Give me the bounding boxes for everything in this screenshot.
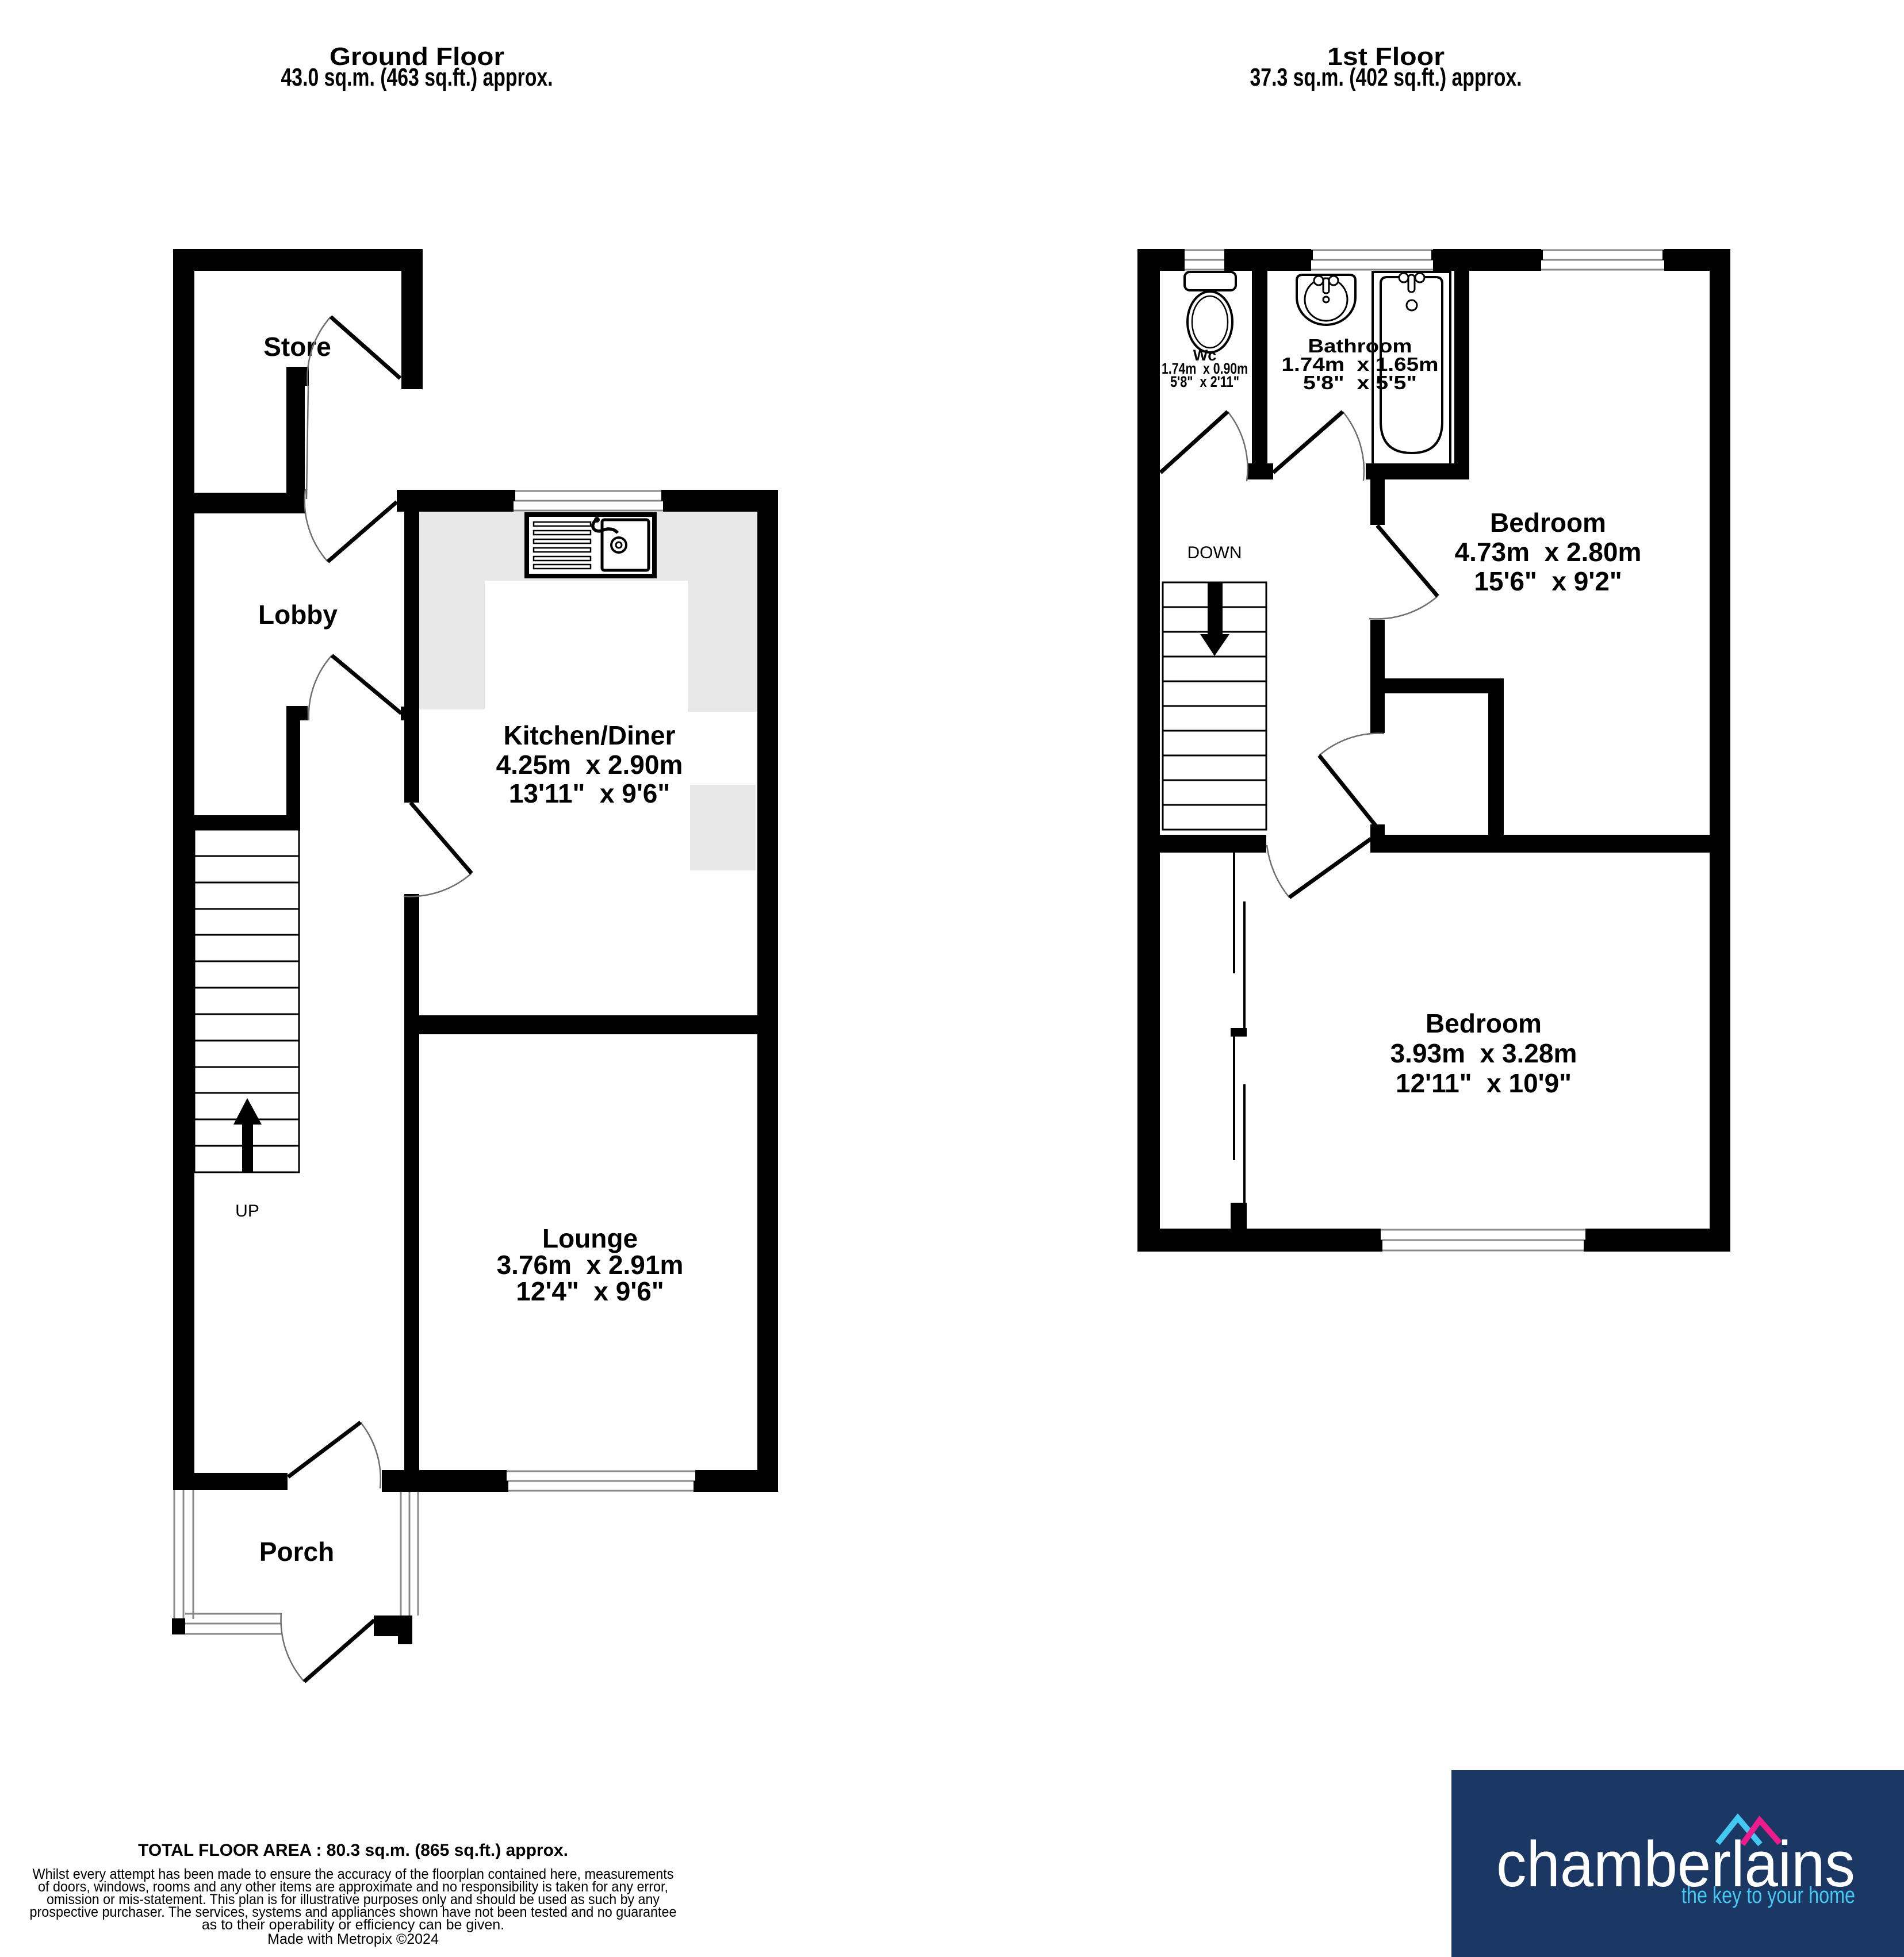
svg-text:Porch: Porch [259, 1537, 334, 1567]
svg-text:UP: UP [235, 1202, 259, 1221]
svg-text:13'11" x 9'6": 13'11" x 9'6" [509, 778, 670, 808]
svg-text:4.25m x 2.90m: 4.25m x 2.90m [496, 750, 683, 780]
svg-text:Lobby: Lobby [258, 600, 338, 630]
svg-text:as to their operability or eff: as to their operability or efficiency ca… [202, 1917, 504, 1933]
svg-text:DOWN: DOWN [1187, 543, 1242, 562]
svg-text:12'11" x 10'9": 12'11" x 10'9" [1396, 1068, 1572, 1098]
svg-text:5'8" x 2'11": 5'8" x 2'11" [1170, 373, 1239, 390]
svg-text:Bedroom: Bedroom [1426, 1008, 1542, 1038]
svg-text:Store: Store [263, 332, 331, 362]
svg-text:3.93m x 3.28m: 3.93m x 3.28m [1390, 1038, 1577, 1068]
svg-text:15'6" x 9'2": 15'6" x 9'2" [1474, 566, 1622, 596]
svg-text:the key to your home: the key to your home [1681, 1883, 1855, 1908]
svg-text:12'4" x 9'6": 12'4" x 9'6" [516, 1276, 664, 1306]
svg-text:5'8" x 5'5": 5'8" x 5'5" [1303, 372, 1417, 393]
svg-text:Made with Metropix ©2024: Made with Metropix ©2024 [267, 1931, 439, 1947]
svg-text:Bedroom: Bedroom [1490, 508, 1606, 538]
svg-text:37.3 sq.m. (402 sq.ft.) approx: 37.3 sq.m. (402 sq.ft.) approx. [1250, 63, 1522, 91]
svg-text:4.73m x 2.80m: 4.73m x 2.80m [1455, 537, 1642, 567]
svg-text:Kitchen/Diner: Kitchen/Diner [503, 720, 675, 750]
svg-text:43.0 sq.m. (463 sq.ft.) approx: 43.0 sq.m. (463 sq.ft.) approx. [281, 63, 553, 91]
svg-text:3.76m x 2.91m: 3.76m x 2.91m [497, 1250, 684, 1280]
svg-text:TOTAL FLOOR AREA : 80.3 sq.m.: TOTAL FLOOR AREA : 80.3 sq.m. (865 sq.ft… [138, 1841, 568, 1860]
svg-text:Lounge: Lounge [542, 1223, 638, 1253]
